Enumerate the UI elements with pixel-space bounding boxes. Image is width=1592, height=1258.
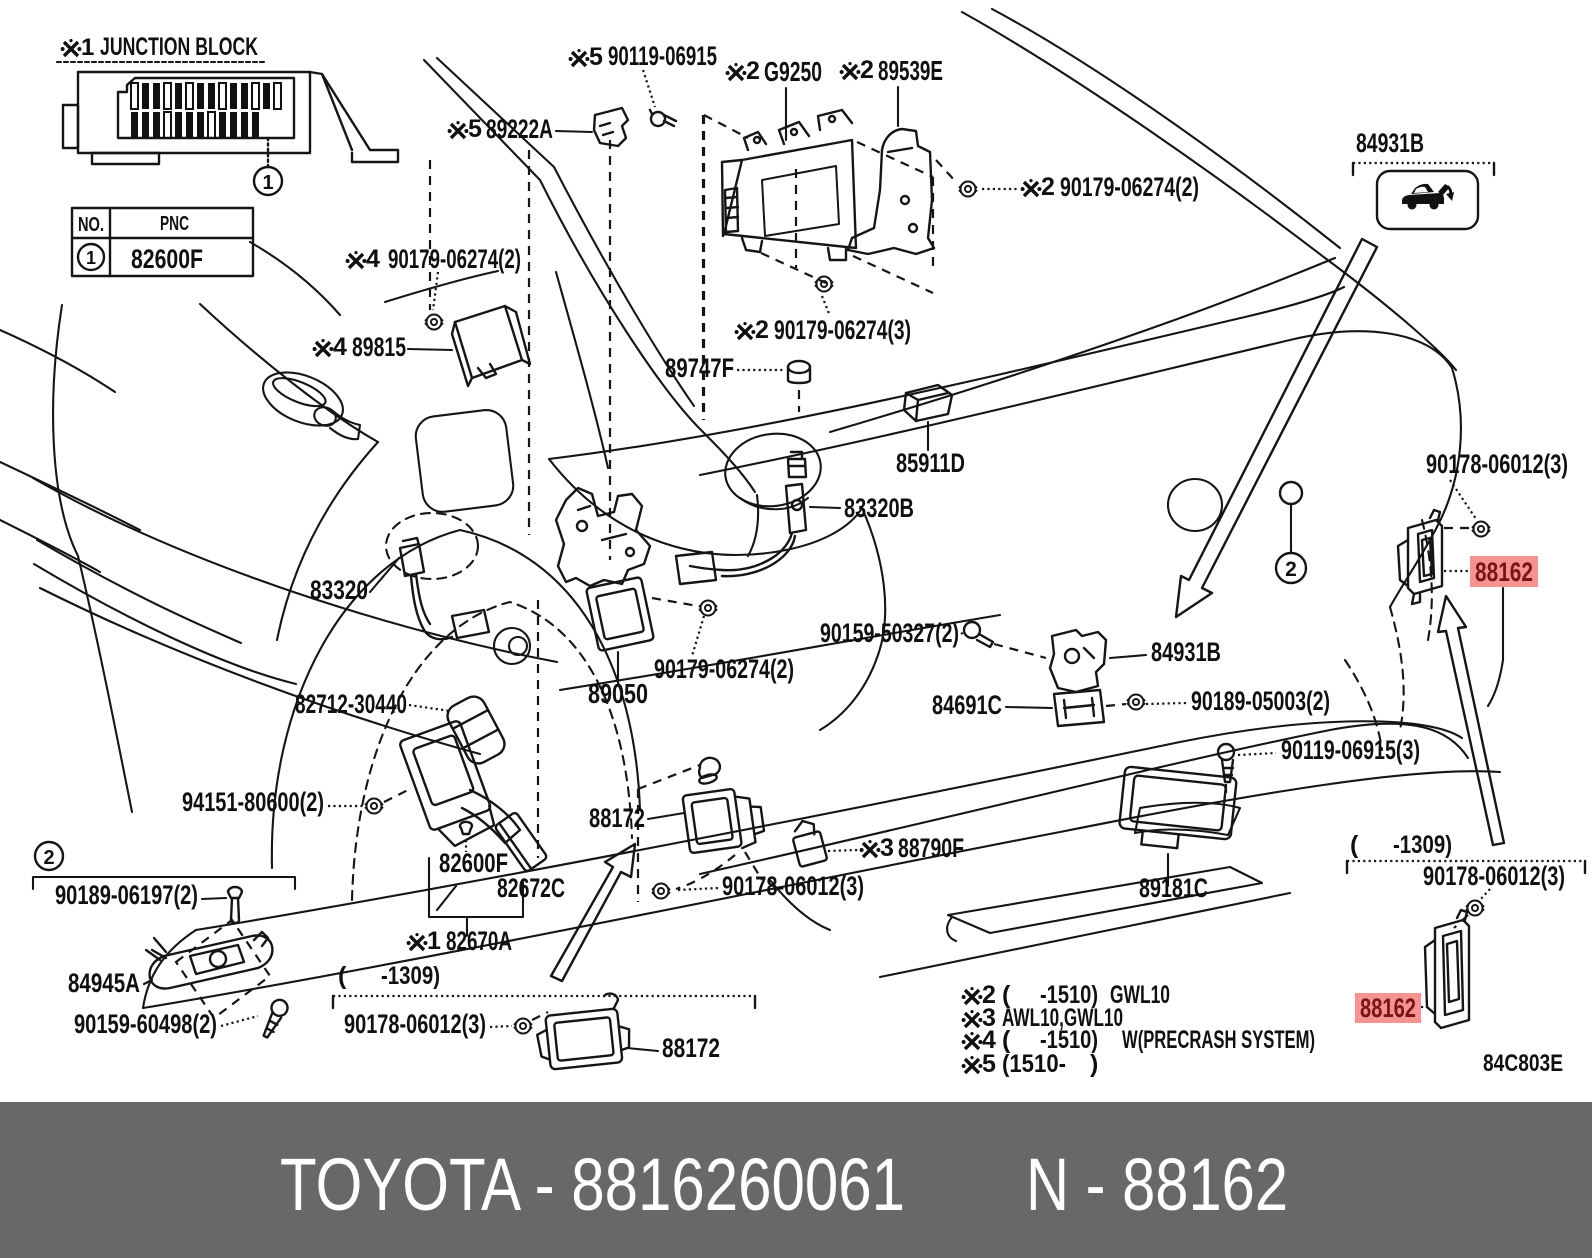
svg-text:2: 2 — [1285, 558, 1297, 581]
svg-text:2: 2 — [755, 316, 769, 344]
svg-text:W(PRECRASH SYSTEM): W(PRECRASH SYSTEM) — [1122, 1026, 1315, 1054]
svg-text:84931B: 84931B — [1356, 128, 1424, 158]
svg-text:90178-06012(3): 90178-06012(3) — [344, 1009, 486, 1039]
svg-text:TOYOTA - 8816260061: TOYOTA - 8816260061 — [280, 1143, 905, 1226]
svg-text:84931B: 84931B — [1151, 637, 1221, 667]
svg-text:90179-06274(2): 90179-06274(2) — [654, 654, 794, 684]
svg-text:G9250: G9250 — [764, 56, 822, 87]
svg-text:90179-06274(2): 90179-06274(2) — [388, 244, 521, 274]
svg-text:84945A: 84945A — [68, 968, 140, 998]
svg-text:84C803E: 84C803E — [1483, 1050, 1563, 1077]
svg-text:89181C: 89181C — [1139, 873, 1208, 903]
svg-text:83320B: 83320B — [844, 493, 914, 523]
svg-text:2: 2 — [43, 847, 54, 869]
svg-text:82600F: 82600F — [131, 244, 203, 274]
svg-text:90179-06274(2): 90179-06274(2) — [1060, 172, 1199, 202]
svg-text:90189-05003(2): 90189-05003(2) — [1191, 686, 1330, 716]
svg-text:90178-06012(3): 90178-06012(3) — [1423, 861, 1565, 891]
svg-text:90159-50327(2): 90159-50327(2) — [820, 618, 959, 648]
svg-text:82712-30440: 82712-30440 — [295, 689, 407, 719]
svg-text:1: 1 — [86, 248, 96, 268]
svg-text:83320: 83320 — [310, 575, 368, 605]
svg-text:-1309): -1309) — [381, 962, 440, 990]
svg-text:84691C: 84691C — [932, 690, 1002, 720]
svg-text:82670A: 82670A — [446, 926, 512, 956]
svg-text:88162: 88162 — [1360, 993, 1416, 1023]
svg-text:4: 4 — [333, 333, 347, 361]
svg-text:4: 4 — [366, 245, 380, 273]
svg-text:(: ( — [1350, 831, 1359, 859]
svg-text:89539E: 89539E — [878, 55, 943, 86]
svg-text:(: ( — [338, 962, 347, 990]
svg-text:NO.: NO. — [78, 214, 104, 236]
svg-text:90119-06915(3): 90119-06915(3) — [1281, 735, 1420, 765]
svg-text:N - 88162: N - 88162 — [1026, 1143, 1288, 1226]
svg-text:89747F: 89747F — [665, 353, 734, 383]
svg-text:82672C: 82672C — [497, 873, 565, 903]
svg-text:88162: 88162 — [1475, 557, 1533, 587]
svg-text:5: 5 — [589, 43, 603, 71]
svg-text:1: 1 — [81, 34, 94, 61]
svg-text:PNC: PNC — [160, 213, 189, 235]
svg-text:5: 5 — [982, 1050, 996, 1078]
svg-text:JUNCTION BLOCK: JUNCTION BLOCK — [100, 33, 258, 61]
svg-text:3: 3 — [880, 834, 894, 862]
svg-text:89815: 89815 — [352, 332, 406, 362]
svg-text:90159-60498(2): 90159-60498(2) — [74, 1009, 217, 1039]
svg-text:5: 5 — [468, 115, 482, 143]
svg-text:2: 2 — [860, 56, 874, 84]
svg-text:89222A: 89222A — [486, 114, 553, 144]
svg-text:2: 2 — [746, 57, 760, 85]
svg-text:(1510-: (1510- — [1002, 1050, 1066, 1078]
svg-text:-1309): -1309) — [1393, 831, 1452, 859]
svg-text:1: 1 — [262, 172, 273, 194]
svg-text:85911D: 85911D — [896, 448, 965, 478]
svg-text:94151-80600(2): 94151-80600(2) — [182, 787, 324, 817]
svg-text:88172: 88172 — [662, 1033, 720, 1063]
svg-text:89050: 89050 — [588, 678, 648, 709]
svg-text:90189-06197(2): 90189-06197(2) — [55, 880, 198, 910]
svg-text:90178-06012(3): 90178-06012(3) — [722, 871, 864, 901]
svg-text:1: 1 — [427, 927, 441, 955]
svg-text:2: 2 — [1041, 173, 1055, 201]
svg-text:): ) — [1090, 1050, 1098, 1078]
svg-text:90178-06012(3): 90178-06012(3) — [1426, 449, 1568, 479]
svg-text:88790F: 88790F — [898, 833, 964, 863]
svg-text:90179-06274(3): 90179-06274(3) — [774, 315, 911, 345]
svg-text:90119-06915: 90119-06915 — [608, 41, 717, 71]
svg-text:88172: 88172 — [589, 803, 645, 833]
